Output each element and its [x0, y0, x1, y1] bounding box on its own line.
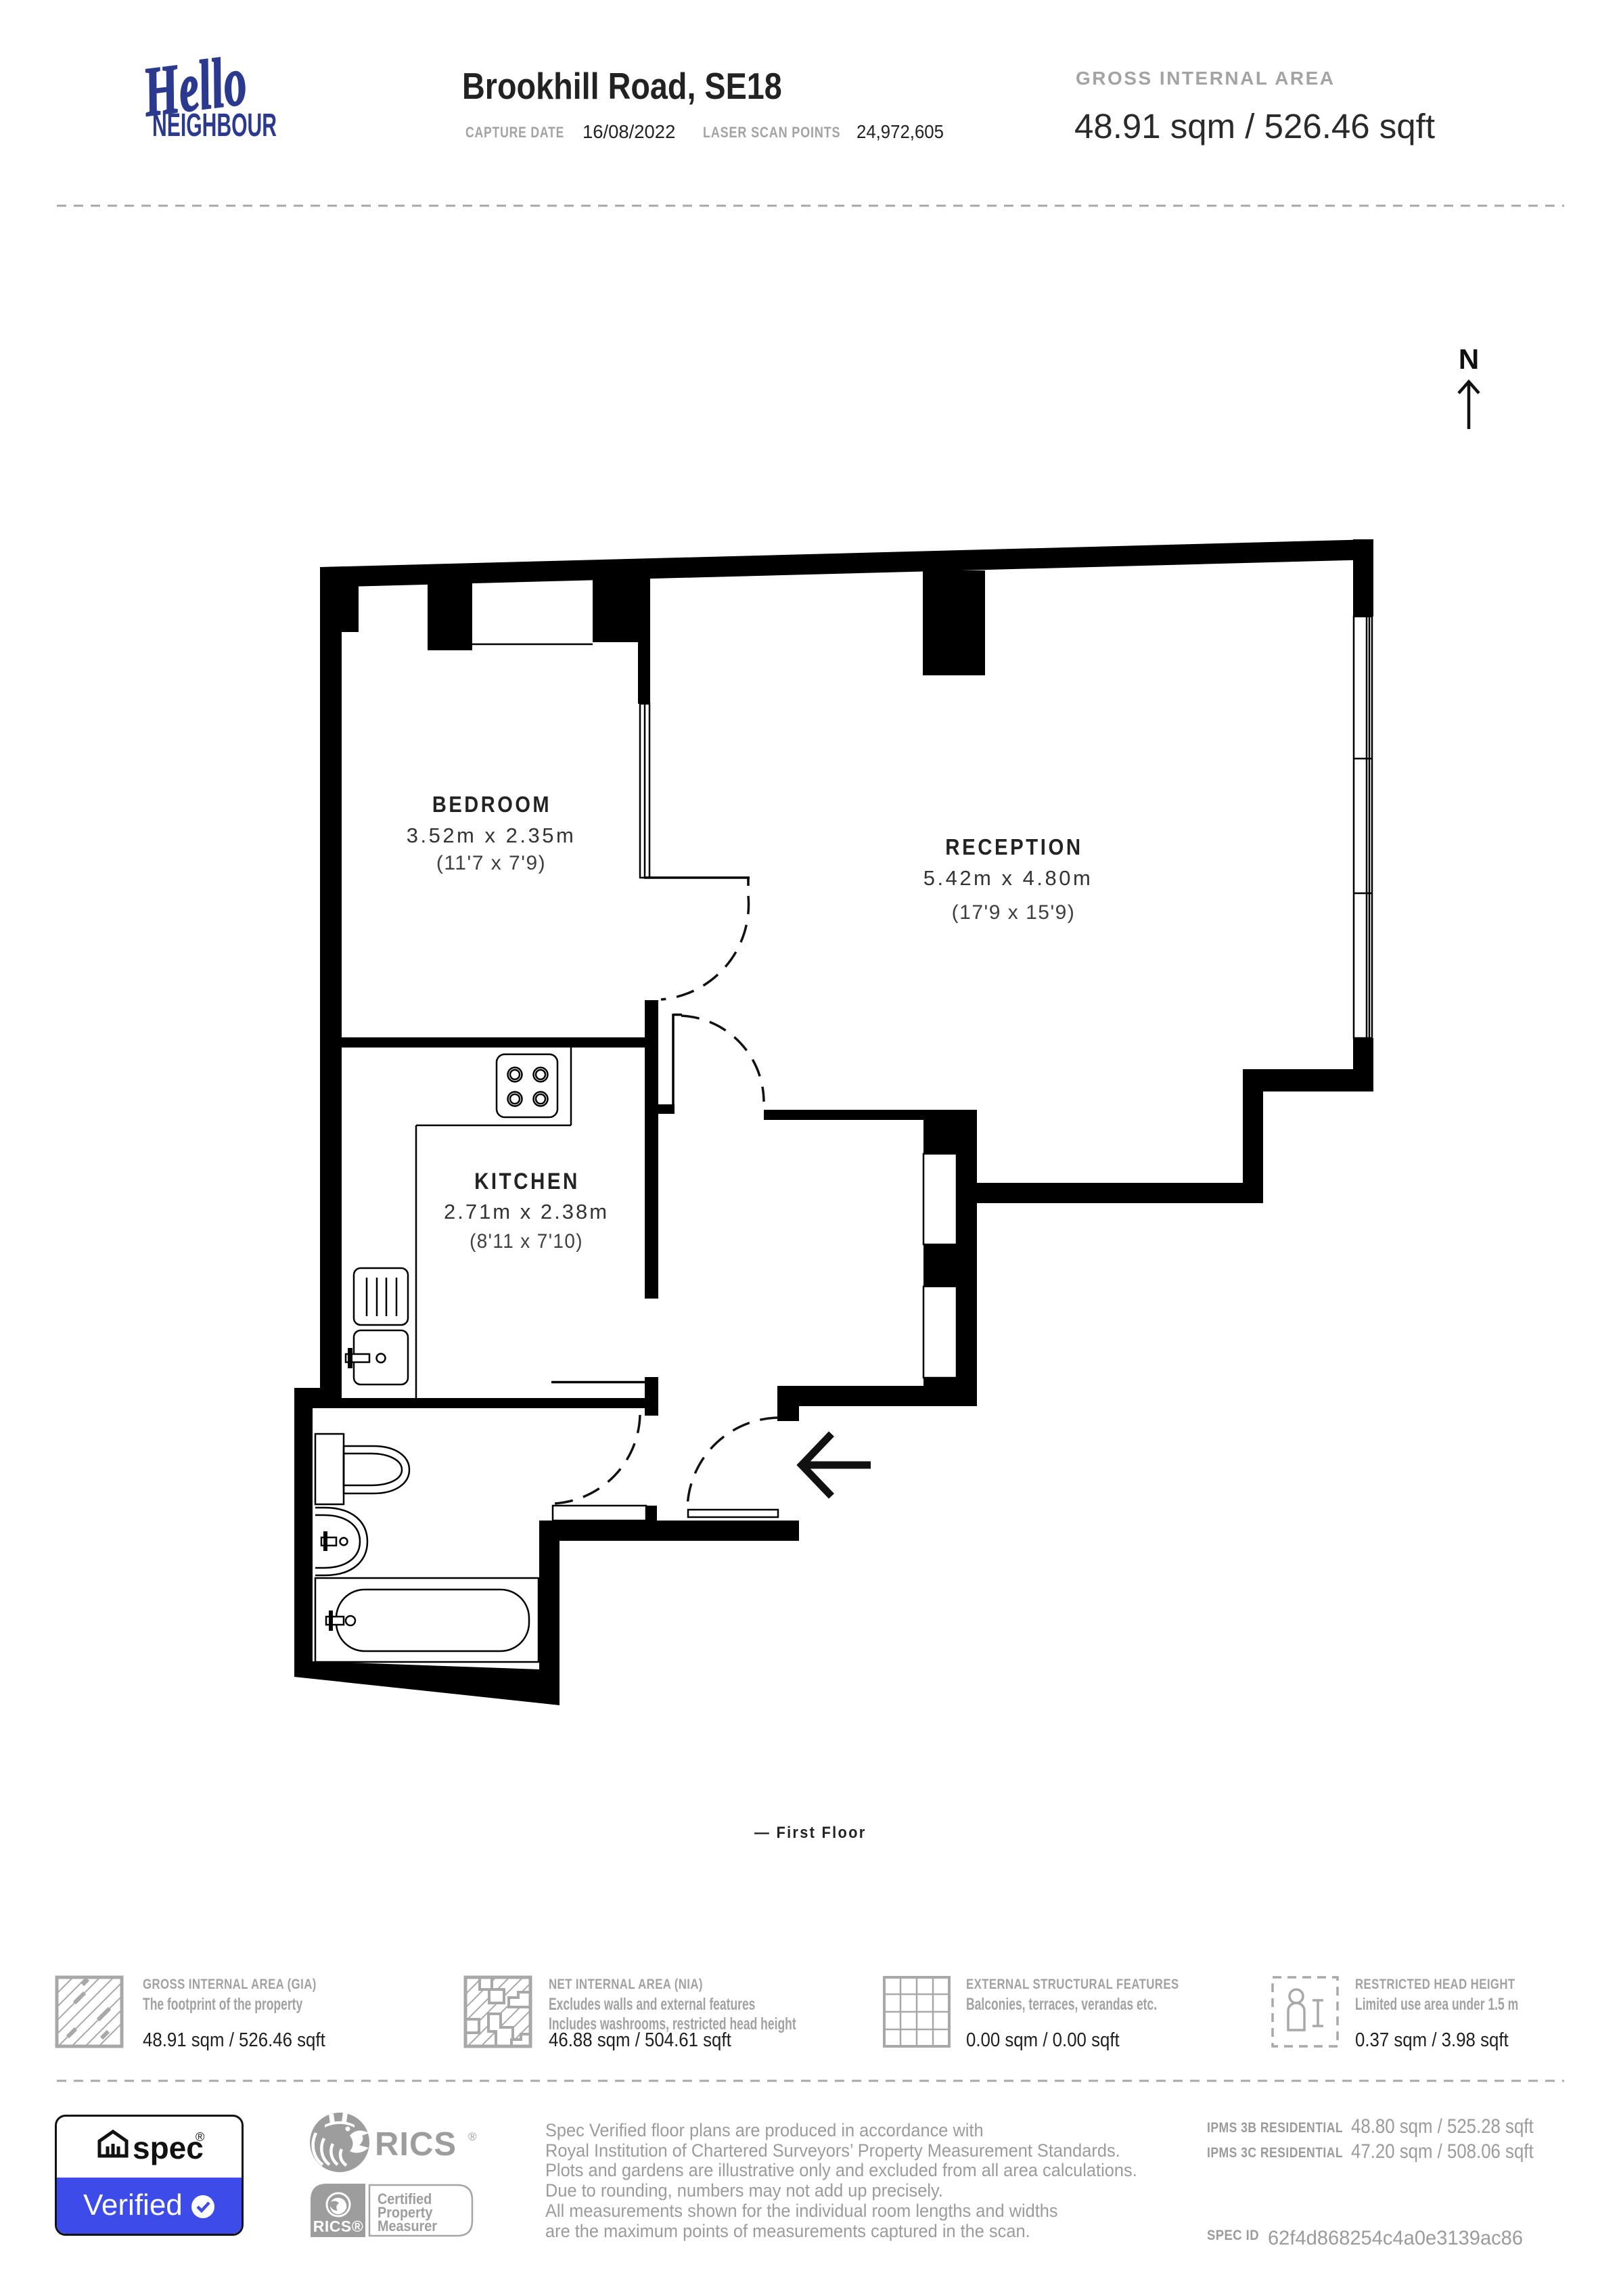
svg-text:spec: spec	[133, 2130, 204, 2165]
svg-text:®: ®	[196, 2130, 204, 2144]
svg-text:®: ®	[468, 2130, 477, 2143]
svg-text:RICS®: RICS®	[313, 2218, 363, 2235]
svg-text:Measurer: Measurer	[378, 2218, 437, 2234]
svg-text:N: N	[1459, 343, 1479, 375]
svg-text:RICS: RICS	[375, 2126, 457, 2163]
